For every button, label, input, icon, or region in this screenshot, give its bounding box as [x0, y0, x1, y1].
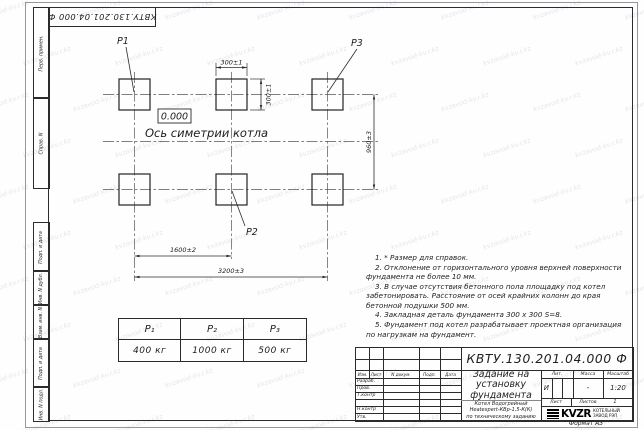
scale-value: 1:20 — [603, 378, 633, 398]
dim-pad-height: 300±1 — [265, 84, 273, 106]
lit-label: Лит. — [541, 370, 573, 378]
drawing-sheet: kvzavod-kv.r.kzkvzavod-kv.r.kzkvzavod-kv… — [0, 0, 644, 430]
load-label-p1: P1 — [117, 36, 129, 47]
col-ndokum: N докум. — [383, 370, 419, 378]
sheet-label: Лист — [541, 398, 571, 406]
kvzr-logo-icon — [547, 409, 559, 419]
load-table-header-p1: P₁ — [119, 319, 181, 340]
load-table: P₁ P₂ P₃ 400 кг 1000 кг 500 кг — [118, 318, 307, 362]
load-table-value-p2: 1000 кг — [181, 340, 243, 361]
title-block-title: Задание на установку фундамента — [462, 371, 540, 400]
title-block: КВТУ.130.201.04.000 Ф Изм. Лист N докум.… — [355, 347, 634, 422]
sheets-label: Листов — [571, 398, 605, 406]
mass-value: - — [573, 378, 603, 398]
row-razrab: Разраб. — [357, 378, 383, 385]
leader-p2 — [232, 191, 245, 226]
dim-total-span: 3200±3 — [218, 267, 244, 275]
subtitle-line-3: по техническому заданию — [466, 414, 536, 420]
col-izm: Изм. — [356, 370, 369, 378]
load-label-p2: P2 — [246, 227, 258, 238]
mass-label: Масса — [573, 370, 603, 378]
note-3: 3. В случае отсутствия бетонного пола пл… — [366, 282, 632, 311]
lit-value: И — [541, 378, 552, 398]
title-block-subtitle: Котел Водогрейный Heatexpert-КВр-1,5-К(К… — [462, 401, 540, 420]
title-block-doc-number: КВТУ.130.201.04.000 Ф — [461, 348, 633, 370]
axis-symmetry-label: Ось симетрии котла — [145, 126, 268, 140]
dim-col-spacing: 1600±2 — [170, 246, 196, 254]
load-table-header-p3: P₃ — [244, 319, 306, 340]
col-data: Дата — [440, 370, 461, 378]
row-tkontr: Т.контр — [357, 392, 383, 399]
dim-row-spacing: 960±3 — [365, 131, 373, 153]
row-nkontr: Н.контр — [357, 406, 383, 413]
kvzr-logo-text: KVZR — [561, 408, 591, 420]
row-prov: Пров. — [357, 385, 383, 392]
dim-pad-width: 300±1 — [221, 59, 243, 67]
scale-label: Масштаб — [603, 370, 633, 378]
level-mark-value: 0.000 — [161, 112, 188, 123]
note-5: 5. Фундамент под котел разрабатывает про… — [366, 320, 632, 339]
technical-notes: 1. * Размер для справок. 2. Отклонение о… — [366, 253, 632, 339]
company-logo-cell: KVZR КОТЕЛЬНЫЙ ЗАВОД РЭП — [541, 406, 633, 421]
sheets-value: 1 — [605, 398, 625, 406]
note-4: 4. Закладная деталь фундамента 300 х 300… — [366, 310, 632, 320]
load-label-p3: P3 — [351, 38, 363, 49]
company-name: КОТЕЛЬНЫЙ ЗАВОД РЭП — [593, 409, 627, 418]
note-1: 1. * Размер для справок. — [366, 253, 632, 263]
leader-p1 — [126, 47, 134, 92]
col-list: Лист — [369, 370, 383, 378]
load-table-value-p3: 500 кг — [244, 340, 306, 361]
format-label: Формат А3 — [540, 420, 632, 427]
note-2: 2. Отклонение от горизонтального уровня … — [366, 263, 632, 282]
col-podp: Подп. — [419, 370, 440, 378]
row-utv: Утв. — [357, 413, 383, 421]
load-table-header-p2: P₂ — [181, 319, 243, 340]
load-table-value-p1: 400 кг — [119, 340, 181, 361]
